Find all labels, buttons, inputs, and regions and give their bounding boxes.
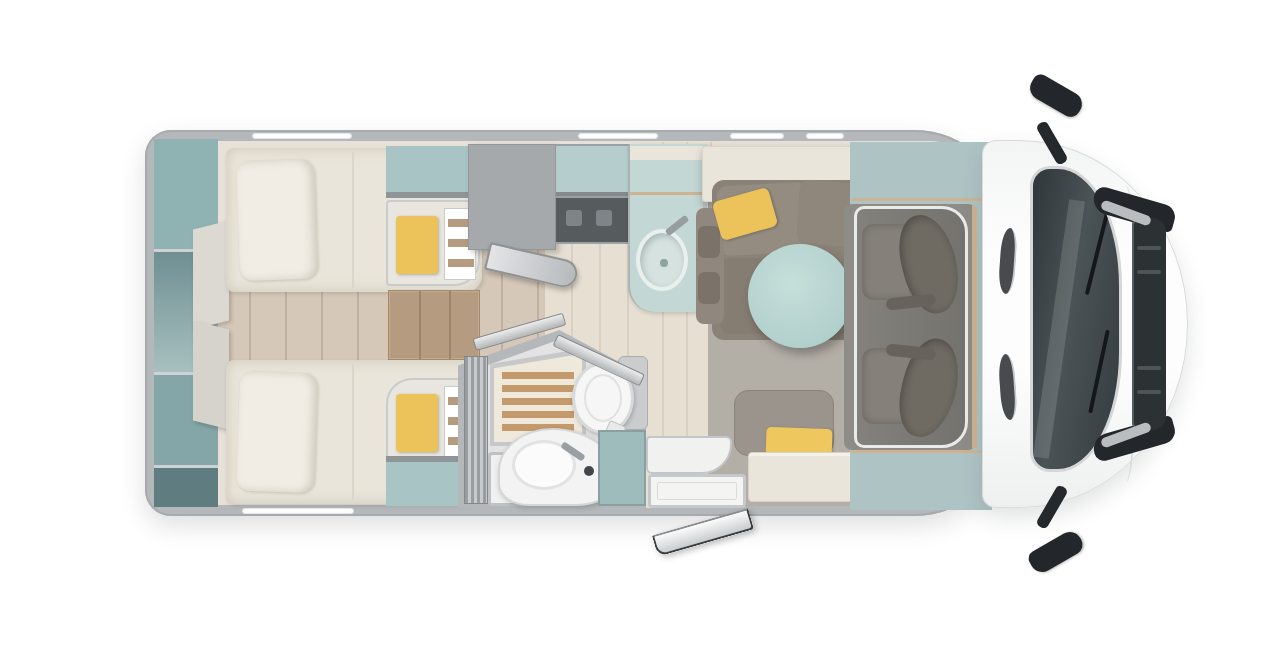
window-strip <box>578 133 658 139</box>
vanity-knob <box>584 466 594 476</box>
kitchen-sink <box>636 229 688 291</box>
counter-shelf <box>630 146 708 160</box>
between-beds-chest <box>388 290 480 360</box>
wiper-blade <box>1088 330 1110 414</box>
wiper-blade <box>1085 212 1109 295</box>
sofa-armrest <box>698 272 720 304</box>
kitchen-block <box>556 144 630 244</box>
burner <box>596 210 612 226</box>
pillow-bottom-bed <box>236 371 318 494</box>
window-strip <box>242 508 354 514</box>
entry-counter <box>646 436 732 474</box>
headboard-panel-top <box>193 221 229 330</box>
toilet-lid-ring <box>584 374 622 422</box>
entry-step <box>648 474 746 508</box>
cab-trim-bottom <box>852 450 990 453</box>
cab-trim-right <box>972 206 977 448</box>
nightstand-cushion <box>396 216 438 274</box>
entry-side-cabinet <box>598 430 646 506</box>
floorplan-canvas <box>0 0 1280 655</box>
sink-drain <box>660 259 668 267</box>
faucet <box>665 215 690 237</box>
burner <box>566 210 582 226</box>
side-mirror-bottom <box>1026 528 1086 577</box>
pillow-top-bed <box>236 159 318 282</box>
windshield-reflection <box>1033 199 1085 459</box>
window-strip <box>806 133 844 139</box>
mattress-seam <box>352 152 354 288</box>
nightstand-top <box>386 200 480 286</box>
shower-wood-slats <box>502 372 574 434</box>
sofa-armrest <box>698 226 720 258</box>
cab-trim-top <box>852 198 990 201</box>
mattress-seam <box>352 364 354 500</box>
front-grille <box>1132 218 1166 430</box>
entry-step-inner <box>657 482 737 500</box>
accordion-door <box>464 356 488 504</box>
side-mirror-top <box>1026 72 1086 121</box>
counter-trim <box>630 192 708 195</box>
kitchen-overhead-cabinet <box>556 146 630 196</box>
overhead-cabinet-top <box>386 146 472 198</box>
tall-wardrobe <box>468 144 556 250</box>
window-strip <box>252 133 352 139</box>
window-strip <box>730 133 784 139</box>
nightstand-cushion <box>396 394 438 452</box>
headboard-panel-bottom <box>193 321 229 430</box>
cooktop <box>556 198 630 242</box>
bench-seat <box>748 452 858 502</box>
wardrobe-cell <box>154 468 218 507</box>
round-table <box>748 244 852 348</box>
